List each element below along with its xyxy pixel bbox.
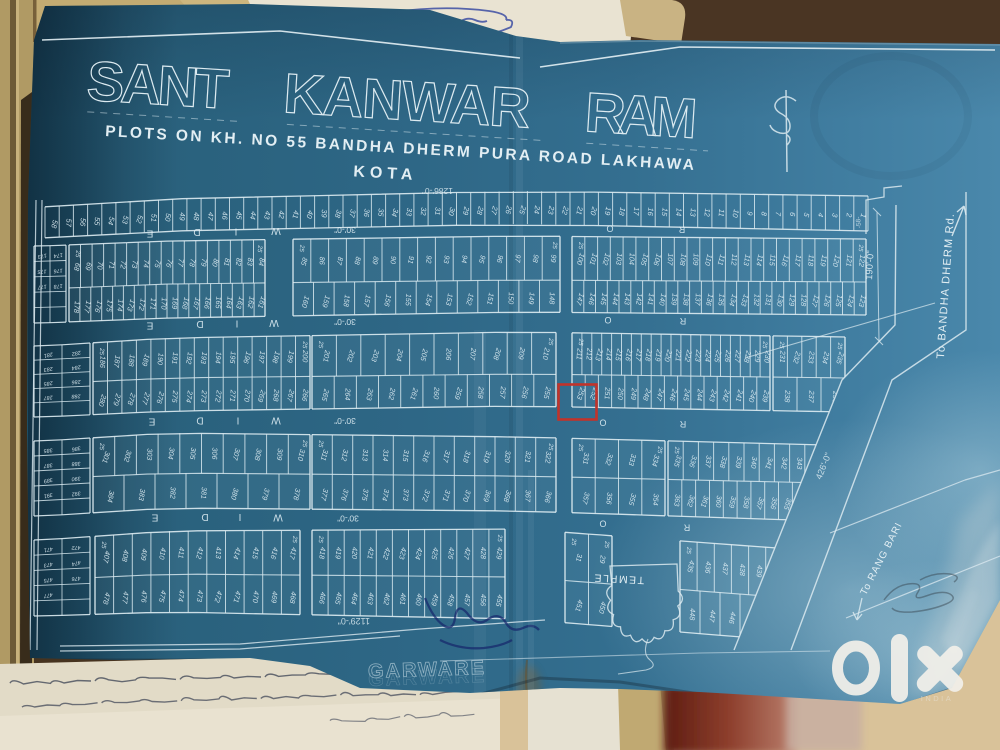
- svg-text:115: 115: [767, 254, 777, 267]
- svg-text:251: 251: [603, 386, 613, 399]
- svg-text:381: 381: [199, 487, 209, 499]
- svg-text:12: 12: [703, 208, 713, 217]
- svg-text:382: 382: [168, 487, 177, 499]
- svg-text:363: 363: [672, 494, 682, 507]
- svg-text:420: 420: [350, 547, 360, 560]
- svg-text:286: 286: [71, 378, 81, 385]
- svg-text:25: 25: [656, 445, 664, 454]
- svg-text:57: 57: [64, 218, 73, 227]
- svg-text:150: 150: [506, 292, 515, 304]
- svg-text:89: 89: [370, 256, 380, 266]
- svg-text:421: 421: [365, 547, 376, 560]
- svg-text:174: 174: [115, 299, 125, 312]
- svg-text:86: 86: [318, 257, 327, 265]
- svg-text:221: 221: [673, 348, 683, 362]
- svg-text:476: 476: [71, 575, 80, 582]
- svg-text:470: 470: [251, 590, 261, 603]
- svg-text:409: 409: [139, 548, 150, 561]
- svg-text:360: 360: [714, 495, 724, 508]
- svg-text:139: 139: [669, 293, 679, 306]
- svg-text:249: 249: [629, 387, 639, 401]
- svg-text:109: 109: [691, 253, 701, 265]
- svg-text:128: 128: [799, 294, 809, 307]
- svg-text:437: 437: [720, 562, 730, 576]
- svg-text:1286'-0": 1286'-0": [422, 186, 453, 196]
- svg-text:354: 354: [651, 493, 661, 506]
- svg-text:25: 25: [577, 443, 585, 452]
- svg-text:21: 21: [574, 205, 585, 216]
- svg-text:D: D: [196, 318, 203, 329]
- svg-text:373: 373: [401, 488, 411, 501]
- svg-text:466: 466: [317, 591, 328, 604]
- svg-text:46: 46: [220, 211, 229, 220]
- svg-text:211: 211: [574, 347, 584, 360]
- svg-text:R: R: [678, 224, 685, 234]
- svg-text:411: 411: [176, 547, 186, 559]
- svg-text:339: 339: [733, 456, 744, 469]
- svg-text:194: 194: [213, 351, 223, 364]
- svg-text:175: 175: [104, 299, 115, 313]
- svg-text:137: 137: [693, 293, 703, 306]
- svg-text:288: 288: [71, 393, 81, 399]
- svg-text:250: 250: [616, 386, 626, 400]
- svg-text:426: 426: [446, 547, 456, 560]
- svg-text:461: 461: [398, 593, 408, 606]
- svg-text:244: 244: [695, 388, 705, 402]
- svg-text:200: 200: [300, 349, 310, 362]
- svg-text:25: 25: [301, 340, 309, 349]
- svg-text:I: I: [237, 415, 240, 426]
- svg-text:25: 25: [547, 442, 555, 451]
- svg-text:193: 193: [199, 351, 210, 364]
- svg-text:322: 322: [543, 451, 553, 464]
- svg-text:W: W: [269, 317, 279, 328]
- svg-text:418: 418: [317, 546, 328, 559]
- svg-text:14: 14: [674, 208, 683, 217]
- svg-text:343: 343: [795, 457, 804, 469]
- svg-text:227: 227: [733, 349, 744, 364]
- svg-text:121: 121: [844, 254, 854, 267]
- svg-text:187: 187: [112, 355, 123, 369]
- svg-text:42: 42: [277, 210, 287, 219]
- svg-text:275: 275: [170, 389, 180, 404]
- svg-text:206: 206: [444, 347, 454, 361]
- svg-text:165: 165: [214, 296, 224, 309]
- svg-text:W: W: [273, 512, 283, 523]
- svg-text:30'-0": 30'-0": [337, 514, 359, 524]
- svg-text:17: 17: [632, 207, 641, 217]
- svg-text:I: I: [235, 226, 238, 237]
- svg-text:104: 104: [627, 253, 637, 265]
- svg-text:25: 25: [570, 537, 578, 546]
- svg-text:287: 287: [42, 394, 54, 401]
- svg-text:356: 356: [604, 492, 614, 505]
- svg-text:R: R: [679, 316, 686, 326]
- svg-text:474: 474: [176, 589, 186, 602]
- svg-text:142: 142: [634, 293, 644, 306]
- svg-text:25: 25: [673, 445, 681, 454]
- svg-text:457: 457: [462, 594, 472, 608]
- svg-text:131: 131: [763, 294, 773, 307]
- svg-text:74: 74: [142, 259, 152, 268]
- svg-text:25: 25: [98, 442, 106, 451]
- svg-text:41: 41: [291, 210, 301, 220]
- svg-text:383: 383: [137, 488, 148, 501]
- svg-text:D: D: [193, 226, 200, 237]
- svg-text:273: 273: [199, 389, 209, 403]
- svg-text:I: I: [236, 318, 239, 329]
- svg-text:98: 98: [531, 254, 541, 263]
- svg-text:RAM: RAM: [583, 80, 707, 150]
- svg-text:176: 176: [53, 267, 63, 274]
- svg-text:93: 93: [442, 255, 452, 264]
- svg-text:135: 135: [716, 293, 726, 307]
- svg-text:463: 463: [365, 592, 376, 605]
- svg-text:190'-0": 190'-0": [864, 250, 877, 280]
- svg-text:D: D: [196, 415, 203, 426]
- svg-text:SANT: SANT: [85, 49, 239, 121]
- svg-text:O: O: [606, 223, 613, 233]
- svg-text:149: 149: [526, 292, 536, 305]
- svg-text:264: 264: [343, 387, 353, 400]
- svg-text:73: 73: [130, 260, 140, 269]
- svg-text:462: 462: [381, 592, 392, 605]
- svg-text:1129'-0": 1129'-0": [338, 616, 370, 626]
- svg-text:19: 19: [603, 206, 613, 216]
- svg-text:138: 138: [681, 293, 691, 306]
- svg-text:331: 331: [581, 452, 591, 465]
- svg-text:429: 429: [494, 547, 504, 560]
- svg-text:25: 25: [98, 347, 106, 356]
- svg-text:321: 321: [523, 450, 533, 463]
- svg-text:392: 392: [71, 489, 81, 496]
- svg-text:11: 11: [717, 209, 727, 218]
- svg-text:25: 25: [317, 439, 325, 448]
- svg-text:233: 233: [806, 350, 817, 364]
- svg-text:419: 419: [333, 547, 343, 560]
- svg-text:R: R: [683, 522, 690, 532]
- svg-text:143: 143: [622, 293, 632, 306]
- svg-text:158: 158: [342, 294, 352, 307]
- svg-text:72: 72: [118, 260, 128, 269]
- svg-text:231: 231: [778, 350, 787, 363]
- svg-text:25: 25: [496, 533, 504, 542]
- svg-text:166: 166: [202, 296, 213, 309]
- svg-text:272: 272: [213, 389, 224, 403]
- svg-text:25: 25: [577, 241, 585, 250]
- svg-text:25: 25: [298, 244, 306, 253]
- svg-text:D: D: [201, 511, 208, 522]
- svg-text:94: 94: [459, 254, 469, 263]
- svg-text:171: 171: [148, 298, 158, 310]
- svg-text:84: 84: [256, 257, 266, 267]
- svg-text:W: W: [271, 415, 281, 426]
- svg-text:82: 82: [234, 257, 244, 266]
- svg-text:477: 477: [120, 591, 131, 605]
- svg-text:25: 25: [547, 337, 555, 346]
- svg-text:390: 390: [71, 475, 81, 482]
- svg-text:E: E: [151, 512, 158, 523]
- svg-text:O: O: [604, 315, 611, 325]
- svg-text:212: 212: [584, 347, 594, 361]
- svg-text:I: I: [239, 511, 242, 522]
- svg-text:30'-0": 30'-0": [334, 416, 356, 426]
- svg-text:30'-0": 30'-0": [334, 317, 356, 327]
- svg-text:303: 303: [145, 448, 155, 460]
- svg-text:315: 315: [401, 449, 412, 463]
- svg-text:224: 224: [703, 348, 714, 362]
- svg-text:29: 29: [461, 205, 472, 216]
- svg-text:51: 51: [149, 213, 158, 222]
- svg-text:29: 29: [598, 554, 608, 564]
- svg-text:271: 271: [228, 389, 238, 402]
- svg-text:190: 190: [155, 353, 165, 366]
- svg-text:226: 226: [723, 349, 734, 363]
- svg-text:25: 25: [577, 337, 585, 346]
- svg-text:32: 32: [419, 207, 428, 216]
- svg-text:320: 320: [503, 450, 513, 463]
- svg-text:448: 448: [688, 608, 698, 620]
- svg-text:191: 191: [170, 352, 180, 365]
- svg-text:35: 35: [376, 208, 386, 218]
- svg-text:413: 413: [214, 547, 223, 559]
- svg-text:164: 164: [224, 296, 235, 309]
- svg-text:141: 141: [646, 293, 656, 306]
- svg-text:107: 107: [666, 253, 676, 266]
- svg-text:258: 258: [476, 385, 486, 398]
- svg-text:178: 178: [72, 301, 82, 314]
- svg-text:305: 305: [188, 447, 198, 461]
- svg-text:468: 468: [288, 591, 299, 604]
- svg-text:214: 214: [604, 347, 614, 361]
- svg-text:25: 25: [317, 535, 325, 544]
- svg-text:25: 25: [603, 540, 611, 549]
- svg-text:INDIA: INDIA: [921, 694, 954, 703]
- svg-text:25: 25: [100, 540, 108, 549]
- svg-text:257: 257: [498, 385, 508, 400]
- svg-text:340: 340: [749, 456, 759, 469]
- svg-text:99: 99: [549, 254, 559, 263]
- svg-text:148: 148: [547, 292, 556, 304]
- svg-text:268: 268: [271, 388, 281, 402]
- svg-text:25: 25: [301, 439, 309, 448]
- svg-text:W: W: [271, 225, 281, 236]
- svg-text:25: 25: [291, 535, 299, 544]
- svg-text:178: 178: [53, 282, 63, 289]
- svg-text:260: 260: [431, 386, 441, 400]
- svg-text:90: 90: [388, 256, 398, 265]
- svg-text:155: 155: [404, 293, 414, 307]
- svg-text:428: 428: [479, 547, 488, 559]
- svg-text:314: 314: [381, 449, 391, 462]
- svg-text:83: 83: [245, 257, 255, 266]
- svg-text:238: 238: [783, 389, 793, 403]
- svg-text:476: 476: [139, 590, 149, 602]
- svg-text:92: 92: [424, 255, 434, 264]
- svg-text:31: 31: [433, 207, 443, 216]
- svg-text:129: 129: [787, 294, 797, 307]
- svg-text:103: 103: [614, 253, 624, 266]
- svg-text:-58-: -58-: [855, 216, 863, 228]
- svg-text:270: 270: [242, 388, 253, 402]
- svg-text:GARWARE: GARWARE: [368, 665, 485, 691]
- svg-text:388: 388: [71, 460, 80, 467]
- svg-text:456: 456: [479, 594, 489, 606]
- svg-text:207: 207: [468, 347, 479, 362]
- svg-text:237: 237: [807, 389, 817, 404]
- svg-text:436: 436: [703, 561, 713, 574]
- svg-text:358: 358: [741, 496, 752, 509]
- svg-text:O: O: [599, 519, 606, 529]
- svg-text:25: 25: [256, 244, 264, 253]
- svg-text:195: 195: [228, 351, 238, 365]
- svg-text:25: 25: [836, 341, 844, 350]
- svg-text:472: 472: [71, 544, 80, 550]
- svg-text:30'-0": 30'-0": [334, 225, 356, 235]
- svg-text:192: 192: [184, 352, 195, 365]
- svg-text:E: E: [146, 228, 153, 239]
- svg-text:81: 81: [222, 258, 232, 267]
- svg-text:25: 25: [761, 340, 769, 349]
- svg-text:469: 469: [269, 591, 279, 604]
- svg-text:25: 25: [857, 243, 865, 252]
- svg-text:79: 79: [199, 258, 209, 267]
- svg-text:175: 175: [36, 268, 46, 274]
- svg-text:49: 49: [178, 212, 187, 221]
- svg-text:R: R: [679, 419, 686, 429]
- svg-text:188: 188: [126, 354, 136, 367]
- svg-text:313: 313: [360, 449, 370, 462]
- svg-text:E: E: [148, 415, 155, 426]
- svg-text:132: 132: [752, 294, 762, 306]
- svg-text:342: 342: [779, 457, 789, 470]
- svg-text:25: 25: [685, 546, 693, 555]
- svg-text:186: 186: [98, 356, 108, 369]
- svg-text:25: 25: [74, 249, 82, 258]
- svg-text:2: 2: [845, 212, 854, 218]
- svg-text:337: 337: [703, 455, 713, 469]
- svg-text:438: 438: [738, 564, 747, 576]
- svg-text:112: 112: [729, 254, 739, 266]
- svg-text:223: 223: [693, 348, 703, 362]
- svg-text:70: 70: [95, 261, 105, 270]
- svg-text:309: 309: [275, 448, 285, 461]
- svg-text:24: 24: [532, 204, 542, 214]
- svg-text:170: 170: [159, 297, 169, 309]
- svg-text:39: 39: [320, 209, 329, 218]
- svg-text:71: 71: [107, 261, 116, 269]
- svg-text:25: 25: [551, 241, 559, 250]
- svg-text:118: 118: [806, 254, 816, 266]
- svg-text:306: 306: [210, 447, 219, 459]
- svg-text:25: 25: [317, 340, 325, 349]
- svg-text:304: 304: [166, 447, 177, 460]
- svg-text:473: 473: [195, 590, 205, 603]
- svg-text:E: E: [146, 320, 153, 331]
- svg-text:169: 169: [170, 297, 180, 310]
- svg-text:O: O: [599, 418, 606, 428]
